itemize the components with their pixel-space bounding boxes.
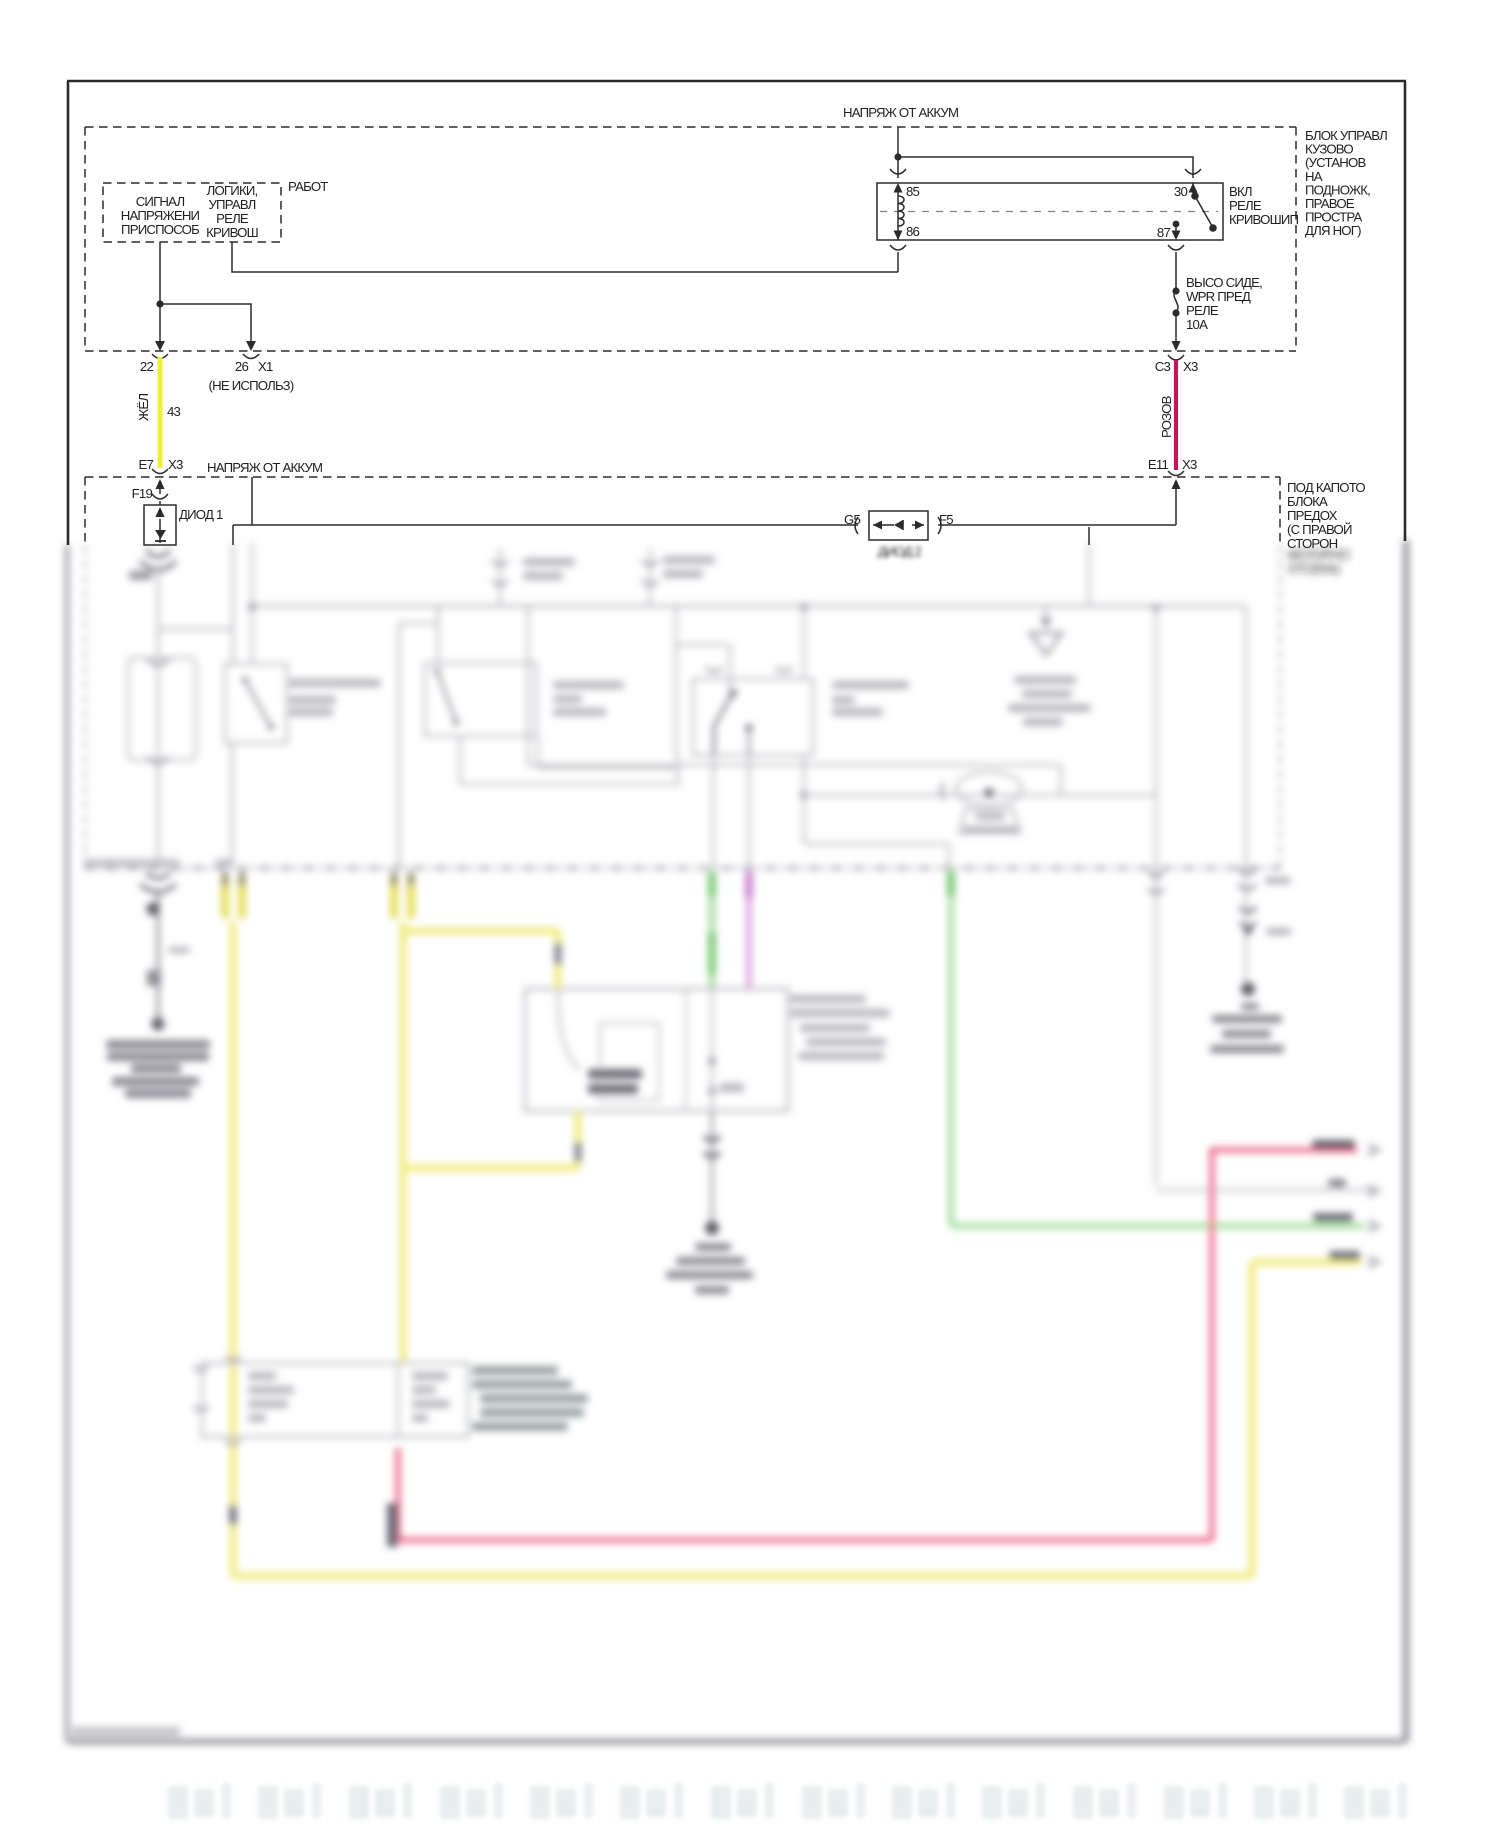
svg-text:F5: F5	[939, 512, 953, 527]
svg-text:22: 22	[140, 359, 154, 374]
svg-text:(НЕ ИСПОЛЬЗ): (НЕ ИСПОЛЬЗ)	[209, 378, 294, 393]
svg-text:10A: 10A	[1186, 317, 1208, 332]
svg-text:УПРАВЛ: УПРАВЛ	[208, 197, 255, 212]
svg-text:26: 26	[235, 359, 249, 374]
svg-text:НАПРЯЖ ОТ АККУМ: НАПРЯЖ ОТ АККУМ	[207, 460, 322, 475]
svg-text:30: 30	[1174, 184, 1188, 199]
svg-text:X3: X3	[1183, 359, 1198, 374]
svg-text:WPR ПРЕД: WPR ПРЕД	[1186, 289, 1251, 304]
svg-text:43: 43	[167, 404, 181, 419]
svg-text:КРИВОШИП: КРИВОШИП	[1229, 212, 1299, 227]
svg-text:ЛОГИКИ,: ЛОГИКИ,	[207, 183, 258, 198]
svg-text:РЕЛЕ: РЕЛЕ	[216, 211, 249, 226]
svg-text:БЛОКА: БЛОКА	[1287, 494, 1328, 509]
svg-text:X1: X1	[258, 359, 273, 374]
svg-text:ДИОД 1: ДИОД 1	[179, 507, 223, 522]
svg-text:E11: E11	[1148, 457, 1169, 472]
svg-text:РЕЛЕ: РЕЛЕ	[1229, 198, 1262, 213]
svg-text:ВЫСО СИДЕ,: ВЫСО СИДЕ,	[1186, 275, 1262, 290]
svg-text:87: 87	[1157, 225, 1171, 240]
svg-text:ДЛЯ НОГ): ДЛЯ НОГ)	[1305, 223, 1361, 238]
svg-text:ВКЛ: ВКЛ	[1229, 184, 1252, 199]
svg-text:ПРЕДОХ: ПРЕДОХ	[1287, 508, 1338, 523]
svg-text:ЖЁЛ: ЖЁЛ	[136, 394, 151, 421]
svg-text:ОТСЕКА): ОТСЕКА)	[1287, 561, 1339, 576]
svg-text:НАПРЯЖ ОТ АККУМ: НАПРЯЖ ОТ АККУМ	[843, 105, 958, 120]
svg-text:ДИОД 2: ДИОД 2	[878, 544, 921, 559]
svg-text:C3: C3	[1155, 359, 1171, 374]
svg-text:КРИВОШ: КРИВОШ	[206, 225, 258, 240]
svg-text:РОЗОВ: РОЗОВ	[1159, 395, 1174, 438]
svg-text:СИГНАЛ: СИГНАЛ	[136, 194, 185, 209]
svg-text:РЕЛЕ: РЕЛЕ	[1186, 303, 1219, 318]
svg-text:X3: X3	[1182, 457, 1197, 472]
svg-text:F19: F19	[132, 486, 153, 501]
svg-text:РАБОТ: РАБОТ	[288, 179, 328, 194]
svg-text:ПОД КАПОТО: ПОД КАПОТО	[1287, 480, 1365, 495]
svg-text:X3: X3	[168, 457, 183, 472]
svg-text:ПРИСПОСОБ: ПРИСПОСОБ	[121, 222, 199, 237]
svg-text:НАПРЯЖЕНИ: НАПРЯЖЕНИ	[121, 208, 200, 223]
svg-text:86: 86	[906, 224, 920, 239]
svg-text:(С ПРАВОЙ: (С ПРАВОЙ	[1287, 522, 1352, 537]
svg-text:E7: E7	[138, 457, 153, 472]
svg-text:G5: G5	[844, 512, 860, 527]
svg-text:85: 85	[906, 184, 920, 199]
svg-text:СТОРОН: СТОРОН	[1287, 536, 1338, 551]
